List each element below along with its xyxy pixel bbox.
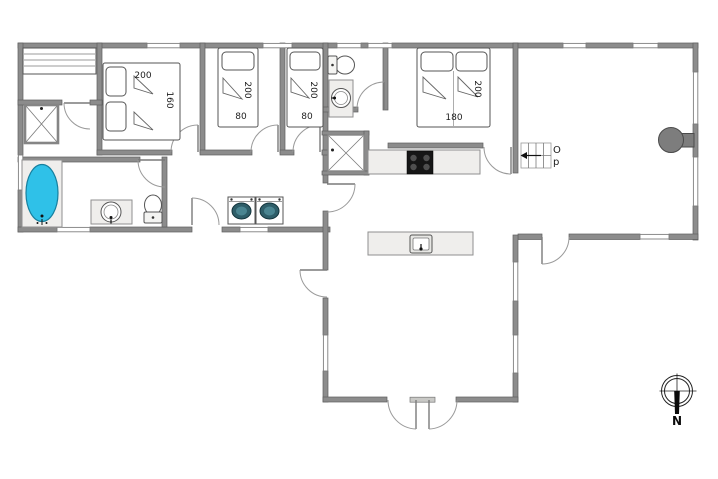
door-hall-to-livingroom xyxy=(327,184,355,212)
window xyxy=(513,335,517,373)
bed-single-2: 200 80 xyxy=(287,48,323,127)
window xyxy=(693,157,697,206)
tap-icon xyxy=(419,247,422,250)
shower-head-icon xyxy=(40,107,43,110)
door-bedroom-single-2 xyxy=(293,125,320,152)
window xyxy=(640,234,669,239)
bed-length-label: 200 xyxy=(472,80,482,97)
toilet-small xyxy=(328,56,355,74)
window xyxy=(693,72,697,124)
stairs-label-up-line1: O xyxy=(553,145,561,156)
window xyxy=(563,43,586,47)
island-sink xyxy=(410,235,432,253)
sink-small xyxy=(329,80,353,117)
window xyxy=(147,43,180,47)
washer-2 xyxy=(256,197,283,224)
pillow xyxy=(222,52,254,70)
door-entry-to-shower-room xyxy=(64,103,90,129)
window xyxy=(240,227,268,231)
bed-single-1: 200 80 xyxy=(218,48,258,127)
bed-master: 200 160 xyxy=(103,63,180,140)
tap-icon xyxy=(110,216,113,219)
stove xyxy=(407,151,433,174)
shower-second xyxy=(328,135,364,171)
bed-width-label: 180 xyxy=(445,113,462,123)
bed-width-label: 80 xyxy=(235,112,247,122)
bed-width-label: 80 xyxy=(301,112,313,122)
window xyxy=(337,43,361,47)
wood-stove xyxy=(659,128,695,153)
compass-needle-icon xyxy=(674,391,680,414)
burner-icon xyxy=(423,164,429,170)
window xyxy=(513,262,517,301)
entrance-door xyxy=(192,198,219,225)
shower-head-icon xyxy=(331,149,334,152)
door-bedroom-single-1 xyxy=(251,125,278,152)
window xyxy=(57,227,90,231)
pillow xyxy=(456,52,487,71)
shower-main xyxy=(25,105,58,143)
door-terrace-south-east xyxy=(542,237,569,264)
pillow xyxy=(106,102,126,131)
toilet-main xyxy=(144,195,162,223)
stairs-up: O p xyxy=(521,143,562,168)
washer-1 xyxy=(228,197,255,224)
pillow xyxy=(106,67,126,96)
window xyxy=(263,43,292,47)
window xyxy=(368,43,392,47)
bed-length-label: 200 xyxy=(308,81,318,98)
door-bedroom-double xyxy=(484,147,511,174)
door-terrace-west xyxy=(300,270,327,297)
wardrobe xyxy=(23,48,96,74)
floor-plan: 200 160 200 80 200 80 200 180 xyxy=(0,0,718,479)
french-doors xyxy=(388,397,457,429)
stairs-label-up-line2: p xyxy=(553,157,559,168)
bed-width-label: 160 xyxy=(164,91,174,108)
burner-icon xyxy=(423,155,429,161)
floor-plan-drawing: 200 160 200 80 200 80 200 180 xyxy=(0,0,718,479)
pillow xyxy=(290,52,320,70)
burner-icon xyxy=(410,164,416,170)
window xyxy=(633,43,658,47)
tap-icon xyxy=(333,97,336,100)
bathtub xyxy=(22,160,62,227)
burner-icon xyxy=(410,155,416,161)
bed-length-label: 200 xyxy=(134,71,151,81)
window xyxy=(323,335,327,371)
pillow xyxy=(421,52,453,71)
door-bathroom xyxy=(138,160,165,187)
door-small-bathroom xyxy=(357,82,384,109)
compass-north-label: N xyxy=(672,414,682,428)
tub-drain-icon xyxy=(41,215,44,218)
bed-double: 200 180 xyxy=(417,48,490,127)
kitchen-counter xyxy=(368,150,480,174)
bed-length-label: 200 xyxy=(242,81,252,98)
sink-main xyxy=(91,200,132,224)
compass-rose: N xyxy=(660,374,697,429)
kitchen-island xyxy=(368,232,473,255)
